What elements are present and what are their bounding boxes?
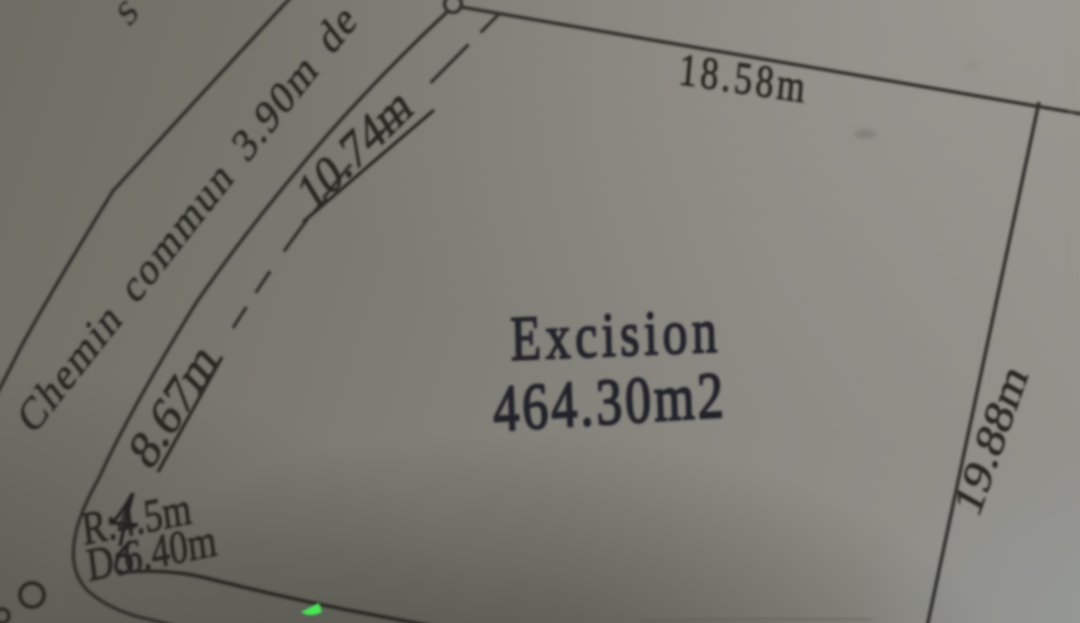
- svg-text:18.58m: 18.58m: [677, 43, 811, 113]
- svg-text:464.30m2: 464.30m2: [492, 358, 728, 446]
- svg-text:19.88m: 19.88m: [945, 356, 1037, 524]
- svg-text:s: s: [104, 0, 147, 36]
